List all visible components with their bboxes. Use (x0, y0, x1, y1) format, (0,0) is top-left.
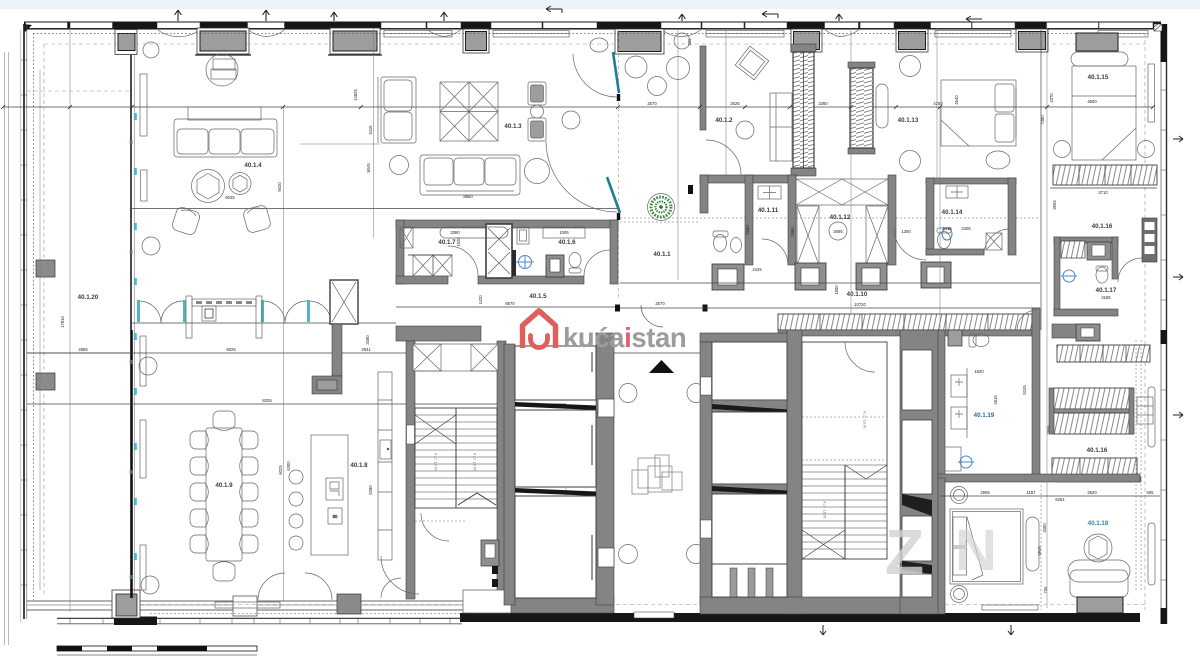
svg-text:40.1.8: 40.1.8 (350, 462, 368, 469)
svg-text:14825: 14825 (353, 89, 358, 101)
svg-text:40.1.18: 40.1.18 (1088, 520, 1109, 527)
svg-text:4815: 4815 (993, 395, 998, 405)
svg-text:3185: 3185 (1101, 295, 1111, 300)
svg-text:40.1.12: 40.1.12 (830, 214, 851, 221)
svg-text:40.1.17: 40.1.17 (1096, 287, 1117, 294)
svg-text:40.1.16: 40.1.16 (1087, 447, 1108, 454)
svg-text:6025: 6025 (226, 347, 236, 352)
svg-text:40.1.5: 40.1.5 (529, 293, 547, 300)
svg-text:4370: 4370 (1049, 93, 1054, 103)
svg-text:2695: 2695 (833, 229, 843, 234)
svg-text:1800: 1800 (834, 285, 839, 295)
svg-text:2460: 2460 (745, 225, 750, 235)
svg-text:1300: 1300 (901, 229, 911, 234)
svg-text:2941: 2941 (361, 347, 371, 352)
svg-text:5115: 5115 (368, 125, 373, 135)
svg-text:16 ST. 17.6: 16 ST. 17.6 (823, 501, 827, 519)
svg-text:9045: 9045 (366, 163, 371, 173)
svg-text:2905: 2905 (980, 490, 990, 495)
svg-text:2620: 2620 (1087, 490, 1097, 495)
svg-text:40.1.3: 40.1.3 (504, 123, 522, 130)
svg-text:6281: 6281 (1055, 497, 1065, 502)
svg-text:40.1.10: 40.1.10 (847, 291, 868, 298)
svg-text:40.1.14: 40.1.14 (942, 209, 963, 216)
svg-text:4500: 4500 (1087, 99, 1097, 104)
svg-text:2360: 2360 (818, 101, 828, 106)
svg-text:40.1.16: 40.1.16 (1092, 223, 1113, 230)
svg-text:1820: 1820 (974, 369, 984, 374)
svg-text:90: 90 (333, 514, 338, 519)
svg-text:3380: 3380 (450, 230, 460, 235)
svg-text:3655: 3655 (1052, 200, 1057, 210)
svg-text:8570: 8570 (505, 301, 515, 306)
svg-text:8950: 8950 (463, 194, 473, 199)
svg-text:3710: 3710 (1098, 190, 1108, 195)
svg-text:2460: 2460 (790, 227, 795, 237)
svg-text:2305: 2305 (961, 226, 971, 231)
svg-text:Z: Z (885, 516, 924, 588)
svg-text:16 ST. 17.6: 16 ST. 17.6 (473, 453, 477, 471)
svg-text:2625: 2625 (730, 101, 740, 106)
svg-text:40.1.9: 40.1.9 (215, 482, 233, 489)
svg-text:40.1.1: 40.1.1 (653, 251, 671, 258)
svg-text:17810: 17810 (60, 316, 65, 328)
svg-text:2570: 2570 (647, 101, 657, 106)
svg-text:705: 705 (1043, 586, 1048, 594)
svg-text:1520: 1520 (456, 237, 461, 247)
svg-text:N: N (955, 518, 997, 583)
svg-text:605: 605 (1147, 490, 1155, 495)
svg-text:8205: 8205 (262, 398, 272, 403)
svg-text:kućaistan: kućaistan (563, 322, 686, 353)
svg-text:40.1.7: 40.1.7 (438, 239, 456, 246)
svg-text:2570: 2570 (655, 301, 665, 306)
svg-text:40.1.13: 40.1.13 (898, 117, 919, 124)
svg-text:6280: 6280 (368, 485, 373, 495)
svg-text:2855: 2855 (78, 347, 88, 352)
svg-text:40.1.6: 40.1.6 (558, 239, 576, 246)
svg-text:1005: 1005 (559, 230, 569, 235)
svg-text:9420: 9420 (277, 182, 282, 192)
svg-text:16 ST. 17.6: 16 ST. 17.6 (863, 411, 867, 429)
svg-text:40.1.4: 40.1.4 (244, 162, 262, 169)
svg-text:16 ST. 17.6: 16 ST. 17.6 (434, 453, 438, 471)
svg-text:40.1.20: 40.1.20 (78, 294, 99, 301)
svg-text:7380: 7380 (1040, 115, 1045, 125)
svg-text:1157: 1157 (1026, 490, 1036, 495)
svg-text:6025: 6025 (225, 195, 235, 200)
svg-text:40.1.11: 40.1.11 (758, 207, 779, 214)
svg-text:3460: 3460 (1042, 523, 1047, 533)
svg-text:6025: 6025 (278, 465, 283, 475)
svg-text:40.1.15: 40.1.15 (1088, 74, 1109, 81)
svg-text:4640: 4640 (954, 95, 959, 105)
svg-text:5245: 5245 (1022, 385, 1027, 395)
svg-text:40.1.2: 40.1.2 (715, 117, 733, 124)
svg-text:2415: 2415 (942, 226, 952, 231)
svg-text:1420: 1420 (478, 295, 483, 305)
svg-text:3480: 3480 (365, 335, 370, 345)
svg-text:40.1.19: 40.1.19 (974, 412, 995, 419)
svg-text:6300: 6300 (286, 461, 291, 471)
svg-text:2425: 2425 (752, 267, 762, 272)
svg-text:10720: 10720 (854, 302, 866, 307)
